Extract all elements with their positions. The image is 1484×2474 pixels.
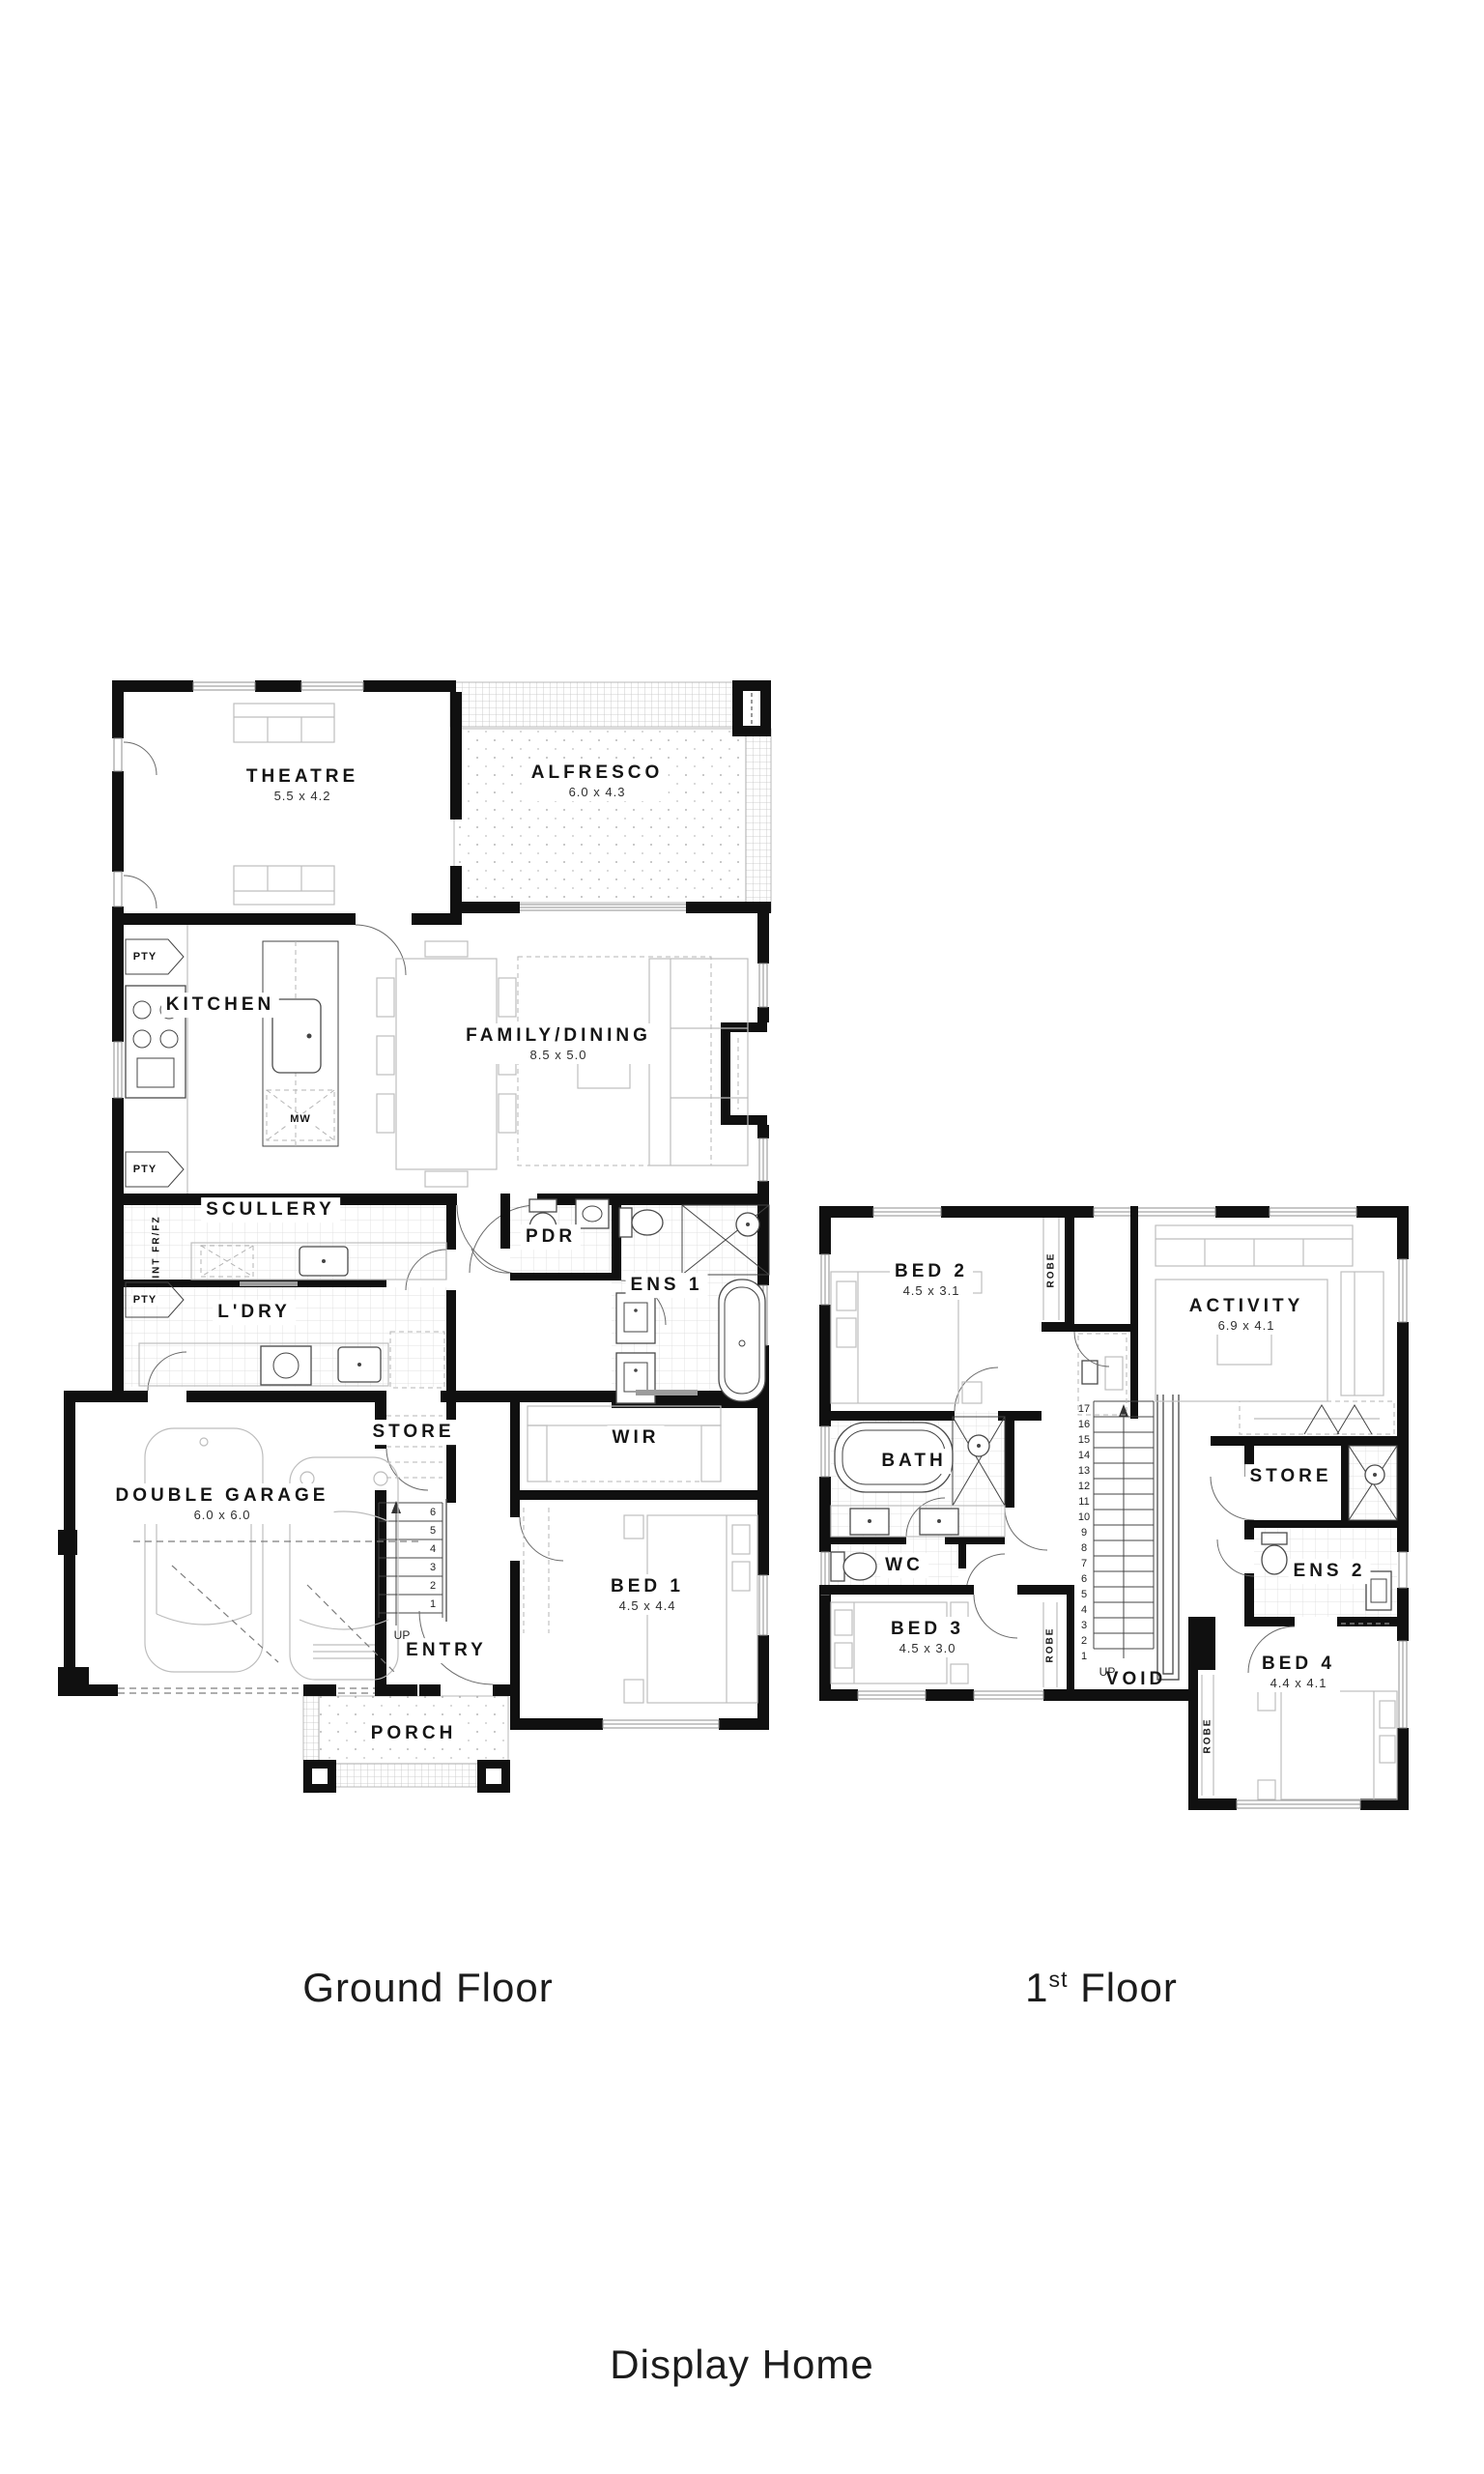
page-title: Display Home xyxy=(610,2342,873,2388)
room-label-porch: PORCH xyxy=(366,1721,462,1746)
room-label-alfresco: ALFRESCO6.0 x 4.3 xyxy=(527,761,669,801)
window xyxy=(114,872,122,906)
window xyxy=(974,1691,1043,1699)
room-label-family-dining: FAMILY/DINING8.5 x 5.0 xyxy=(461,1023,656,1064)
room-label-bed3: BED 34.5 x 3.0 xyxy=(886,1617,969,1657)
window xyxy=(1399,1552,1407,1588)
pantry-label: PTY xyxy=(131,1294,158,1306)
study-bench xyxy=(1240,1401,1394,1434)
up-label: UP xyxy=(394,1628,411,1642)
room-label-bath: BATH xyxy=(876,1449,951,1474)
column-post xyxy=(732,680,771,736)
room-label-ldry: L'DRY xyxy=(213,1300,296,1325)
room-label-theatre: THEATRE5.5 x 4.2 xyxy=(242,764,363,805)
room-label-pdr: PDR xyxy=(521,1224,581,1250)
alfresco-floor xyxy=(454,729,746,903)
wc-toilet-icon xyxy=(831,1552,876,1581)
ens2-toilet-icon xyxy=(1262,1533,1287,1574)
first-floor-caption: 1st Floor xyxy=(1025,1965,1178,2011)
porch-pillar xyxy=(477,1760,510,1793)
car-icon xyxy=(145,1428,263,1672)
pantry-label: PTY xyxy=(131,1164,158,1175)
bathtub-icon xyxy=(719,1280,765,1401)
window xyxy=(858,1691,926,1699)
room-label-bed2: BED 24.5 x 3.1 xyxy=(890,1259,973,1300)
window xyxy=(114,738,122,771)
stacker-door xyxy=(520,905,686,910)
window xyxy=(603,1720,719,1728)
room-label-entry: ENTRY xyxy=(401,1638,492,1663)
window xyxy=(301,682,363,690)
ground-floor-caption: Ground Floor xyxy=(302,1965,553,2011)
window xyxy=(759,1138,767,1181)
staircase xyxy=(379,1499,446,1625)
kitchen-bench xyxy=(126,925,187,1194)
room-label-garage: DOUBLE GARAGE6.0 x 6.0 xyxy=(111,1483,334,1524)
room-label-scullery: SCULLERY xyxy=(201,1197,340,1223)
bed4-icon xyxy=(1258,1691,1397,1799)
window xyxy=(1399,1641,1407,1728)
ground-floor-plan: THEATRE5.5 x 4.2 ALFRESCO6.0 x 4.3 KITCH… xyxy=(56,667,800,1812)
floor-plan-sheet: THEATRE5.5 x 4.2 ALFRESCO6.0 x 4.3 KITCH… xyxy=(0,0,1484,2474)
window xyxy=(821,1426,829,1477)
first-floor-plan: BED 24.5 x 3.1 ACTIVITY6.9 x 4.1 BATH WC… xyxy=(800,1187,1428,1825)
window xyxy=(114,1042,122,1098)
window xyxy=(759,1575,767,1635)
integrated-fridge-label: INT FR/FZ xyxy=(152,1213,162,1280)
dining-table-icon xyxy=(377,941,516,1187)
garage-door xyxy=(118,1688,419,1693)
ens1-toilet-icon xyxy=(619,1208,663,1237)
up-label: UP xyxy=(1099,1665,1116,1679)
window xyxy=(821,1254,829,1305)
window xyxy=(873,1208,941,1216)
room-label-activity: ACTIVITY6.9 x 4.1 xyxy=(1184,1294,1309,1335)
pantry-label: PTY xyxy=(131,951,158,963)
window xyxy=(1270,1208,1356,1216)
room-label-store-gf: STORE xyxy=(367,1420,459,1445)
microwave-label: MW xyxy=(288,1113,313,1125)
room-label-wir: WIR xyxy=(608,1425,665,1451)
pdr-vanity xyxy=(576,1199,609,1228)
room-label-ens1: ENS 1 xyxy=(626,1273,708,1298)
window xyxy=(1237,1800,1360,1808)
robe-label: ROBE xyxy=(1045,1625,1056,1665)
window xyxy=(759,964,767,1007)
room-label-kitchen: KITCHEN xyxy=(161,992,279,1018)
room-label-bed1: BED 14.5 x 4.4 xyxy=(606,1574,689,1615)
staircase xyxy=(1094,1395,1179,1680)
window xyxy=(193,682,255,690)
window xyxy=(1094,1208,1215,1216)
room-label-store-ff: STORE xyxy=(1244,1464,1336,1489)
room-label-ens2: ENS 2 xyxy=(1289,1559,1371,1584)
window xyxy=(1399,1259,1407,1322)
room-label-bed4: BED 44.4 x 4.1 xyxy=(1257,1652,1340,1692)
room-label-wc: WC xyxy=(880,1553,928,1578)
robe-label: ROBE xyxy=(1203,1716,1213,1756)
tv-recess xyxy=(721,1022,767,1125)
porch-pillar xyxy=(303,1760,336,1793)
robe-label: ROBE xyxy=(1046,1251,1057,1290)
